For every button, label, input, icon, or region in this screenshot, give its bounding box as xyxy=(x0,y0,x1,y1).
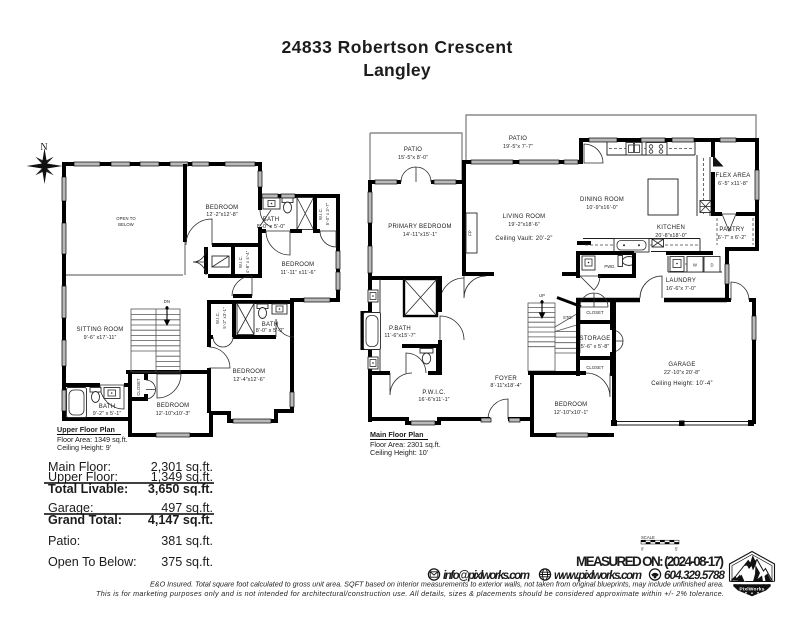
svg-text:Open To Below:: Open To Below: xyxy=(48,555,137,569)
svg-text:BATH: BATH xyxy=(263,217,280,223)
svg-text:P.W.I.C.: P.W.I.C. xyxy=(422,390,445,396)
svg-text:PATIO: PATIO xyxy=(509,136,527,142)
svg-text:12’-10”x10’-3”: 12’-10”x10’-3” xyxy=(156,411,191,417)
svg-text:STORAGE: STORAGE xyxy=(580,336,611,342)
svg-text:GARAGE: GARAGE xyxy=(668,362,695,368)
svg-text:11’-6”x15’-7”: 11’-6”x15’-7” xyxy=(384,333,415,339)
svg-text:4,147 sq.ft.: 4,147 sq.ft. xyxy=(148,513,213,527)
svg-text:BEDROOM: BEDROOM xyxy=(555,402,588,408)
svg-text:Ceiling Vault: 20’-2”: Ceiling Vault: 20’-2” xyxy=(495,236,552,242)
svg-text:15’-5”x 8’-0”: 15’-5”x 8’-0” xyxy=(398,155,428,161)
svg-text:14’-11”x15’-1”: 14’-11”x15’-1” xyxy=(403,232,437,238)
svg-text:MEASURED ON: (2024-08-17): MEASURED ON: (2024-08-17) xyxy=(576,554,724,569)
svg-text:5’: 5’ xyxy=(675,547,678,552)
svg-text:PWD.: PWD. xyxy=(604,264,615,269)
svg-text:8’-11”x18’-4”: 8’-11”x18’-4” xyxy=(490,383,521,389)
svg-text:6’-5” x11’-8”: 6’-5” x11’-8” xyxy=(718,181,748,187)
svg-text:PANTRY: PANTRY xyxy=(719,227,744,233)
svg-text:FOYER: FOYER xyxy=(495,376,517,382)
svg-text:SCALE: SCALE xyxy=(641,535,655,540)
svg-text:FLEX AREA: FLEX AREA xyxy=(716,173,751,179)
svg-text:DINING ROOM: DINING ROOM xyxy=(580,197,624,203)
svg-text:OPEN TO: OPEN TO xyxy=(116,216,136,221)
svg-text:16’-6”x11’-1”: 16’-6”x11’-1” xyxy=(418,397,449,403)
svg-text:UP: UP xyxy=(539,293,545,298)
svg-text:4’-8” x 4’-4”: 4’-8” x 4’-4” xyxy=(245,250,250,273)
svg-text:Total Livable:: Total Livable: xyxy=(48,482,128,496)
svg-text:W.I.C.: W.I.C. xyxy=(318,208,323,220)
svg-text:W: W xyxy=(693,263,697,268)
svg-text:P.BATH: P.BATH xyxy=(389,326,411,332)
svg-text:PRIMARY BEDROOM: PRIMARY BEDROOM xyxy=(388,224,452,230)
svg-text:D: D xyxy=(710,263,713,268)
svg-text:Patio:: Patio: xyxy=(48,534,80,548)
svg-text:SITTING ROOM: SITTING ROOM xyxy=(77,327,124,333)
svg-text:BATH: BATH xyxy=(99,404,116,410)
svg-text:CLOSET: CLOSET xyxy=(586,310,604,315)
svg-text:24833 Robertson Crescent: 24833 Robertson Crescent xyxy=(282,37,513,57)
svg-text:LIVING ROOM: LIVING ROOM xyxy=(503,214,546,220)
svg-text:19’-2”x18’-6”: 19’-2”x18’-6” xyxy=(508,222,540,228)
svg-text:Ceiling Height: 10’: Ceiling Height: 10’ xyxy=(370,448,429,457)
svg-text:BELOW: BELOW xyxy=(118,222,134,227)
svg-text:BEDROOM: BEDROOM xyxy=(233,369,266,375)
svg-text:11’-11” x11’-6”: 11’-11” x11’-6” xyxy=(280,270,315,276)
svg-text:9’-2” x 5’-1”: 9’-2” x 5’-1” xyxy=(93,411,122,417)
svg-text:Upper Floor Plan: Upper Floor Plan xyxy=(57,425,115,434)
svg-text:12’-4”x12’-6”: 12’-4”x12’-6” xyxy=(233,377,265,383)
svg-text:E&O Insured. Total square foo: E&O Insured. Total square foot calculate… xyxy=(150,580,724,589)
svg-text:CLOSET: CLOSET xyxy=(136,378,141,396)
svg-text:CLOSET: CLOSET xyxy=(586,365,604,370)
svg-text:10’-9”x16’-0”: 10’-9”x16’-0” xyxy=(586,205,618,211)
svg-text:5’-0” x 3’-7”: 5’-0” x 3’-7” xyxy=(325,202,330,225)
svg-text:PATIO: PATIO xyxy=(404,147,422,153)
svg-text:12’-2”x12’-8”: 12’-2”x12’-8” xyxy=(206,212,238,218)
svg-text:5’-6” x 5’-8”: 5’-6” x 5’-8” xyxy=(581,344,610,350)
svg-text:12’-10”x10’-1”: 12’-10”x10’-1” xyxy=(554,410,589,416)
svg-text:6’-7” x 6’-2”: 6’-7” x 6’-2” xyxy=(718,235,747,241)
svg-text:BEDROOM: BEDROOM xyxy=(282,262,315,268)
svg-text:LAUNDRY: LAUNDRY xyxy=(666,278,696,284)
svg-text:381 sq.ft.: 381 sq.ft. xyxy=(161,534,213,548)
svg-text:Langley: Langley xyxy=(363,60,431,80)
svg-text:KITCHEN: KITCHEN xyxy=(657,225,685,231)
svg-text:0’: 0’ xyxy=(641,547,644,552)
svg-text:19’-5”x 7’-7”: 19’-5”x 7’-7” xyxy=(503,144,533,150)
svg-text:PixlWorks: PixlWorks xyxy=(739,586,764,592)
svg-text:16’-6”x 7’-0”: 16’-6”x 7’-0” xyxy=(666,286,696,292)
svg-text:22’-10”x 20’-8”: 22’-10”x 20’-8” xyxy=(664,370,700,376)
svg-text:STO.: STO. xyxy=(563,315,573,320)
svg-text:This is for marketing purposes: This is for marketing purposes only and … xyxy=(96,589,724,598)
svg-text:W.I.C.: W.I.C. xyxy=(238,256,243,268)
svg-text:BEDROOM: BEDROOM xyxy=(206,205,239,211)
svg-text:DN: DN xyxy=(164,299,170,304)
svg-text:Ceiling Height: 9’: Ceiling Height: 9’ xyxy=(57,443,112,452)
svg-text:W.I.C.: W.I.C. xyxy=(215,312,220,324)
svg-text:375 sq.ft.: 375 sq.ft. xyxy=(161,555,213,569)
svg-text:9’-6” x17’-11”: 9’-6” x17’-11” xyxy=(84,335,117,341)
svg-text:Main Floor Plan: Main Floor Plan xyxy=(370,430,424,439)
svg-text:5’-2” x3’-1”: 5’-2” x3’-1” xyxy=(222,307,227,329)
svg-text:3,650 sq.ft.: 3,650 sq.ft. xyxy=(148,482,213,496)
svg-text:FP: FP xyxy=(468,230,473,236)
svg-text:Ceiling Height: 10’-4”: Ceiling Height: 10’-4” xyxy=(651,381,713,387)
svg-text:BEDROOM: BEDROOM xyxy=(157,403,190,409)
svg-text:Grand Total:: Grand Total: xyxy=(48,513,122,527)
